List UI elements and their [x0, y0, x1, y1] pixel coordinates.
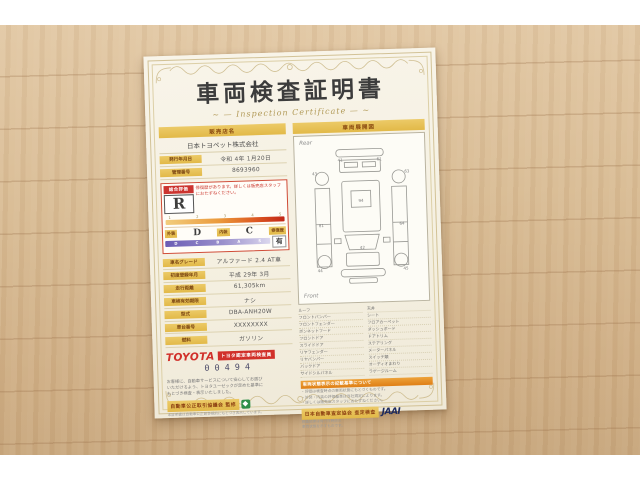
meta-value: 令和 4年 1月20日: [204, 152, 286, 164]
spec-label: 走行距離: [164, 284, 206, 293]
panel-number: 94: [358, 198, 363, 203]
overall-evaluation-box: 総合評価 R 修復歴があります。詳しくは販売店スタッフにおたずねください。 12…: [160, 179, 289, 255]
spec-value: DBA-ANH20W: [209, 308, 291, 317]
spec-label: 燃料: [165, 336, 207, 345]
spec-value: ナシ: [209, 294, 291, 306]
evaluation-note: 修復歴があります。詳しくは販売店スタッフにおたずねください。: [195, 182, 285, 213]
meta-row: 管理番号 8693960: [160, 163, 287, 179]
screenshot: 車両検査証明書 ~ — Inspection Certificate — ~ 販…: [0, 0, 640, 480]
panel-number: 81: [319, 223, 324, 228]
spec-value: 61,305km: [209, 282, 291, 291]
spec-label: 初度登録年月: [163, 271, 205, 280]
footer-description: お客様に、自動車サービスについて安心してお選びいただけるよう、トヨタユーゼックが…: [167, 375, 295, 398]
inspection-certificate: 車両検査証明書 ~ — Inspection Certificate — ~ 販…: [143, 48, 446, 419]
certified-inspector-badge: トヨタ認定車両検査員: [218, 350, 275, 361]
spec-value: XXXXXXXX: [210, 321, 292, 330]
spec-value: ガソリン: [210, 332, 292, 344]
panel-number: 42: [360, 245, 365, 250]
meta-value: 8693960: [205, 166, 287, 175]
grade-scale-letter: C: [195, 240, 198, 245]
panel-number: 45: [403, 265, 408, 270]
interior-label: 内装: [217, 228, 230, 236]
exterior-grade: D: [179, 228, 215, 239]
meta-label: 管理番号: [160, 168, 202, 177]
spec-label: 車検有効期限: [164, 297, 206, 306]
scale-tick: 1: [168, 215, 171, 220]
fair-trade-council-bar: 自動車公正取引協議会 監修: [167, 398, 239, 411]
toyota-logo: TOYOTA: [166, 350, 215, 364]
legend-item: サイドシルパネル: [300, 369, 364, 378]
wooden-table-photo: 車両検査証明書 ~ — Inspection Certificate — ~ 販…: [0, 25, 640, 455]
legend-right: 天井シートフロアカーペットダッシュボードドアトリムステアリングメーターパネルスイ…: [367, 304, 433, 376]
scale-tick: 3: [224, 213, 227, 218]
scale-tick: 2: [196, 214, 199, 219]
spec-rows: 車名グレード アルファード 2.4 AT車 初度登録年月 平成 29年 3月: [163, 252, 293, 347]
grade-scale-letter: A: [237, 239, 240, 244]
legend-left: ルーフフロントバンパーフロントフェンダーボンネットフードフロントドアスライドドア…: [298, 306, 364, 378]
meta-rows: 発行年月日 令和 4年 1月20日 管理番号 8693960: [159, 150, 287, 180]
interior-grade: C: [231, 226, 267, 237]
panel-number: 41: [338, 157, 343, 162]
certificate-content: 車両検査証明書 ~ — Inspection Certificate — ~ 販…: [157, 62, 433, 405]
grade-scale-letter: D: [174, 241, 177, 246]
certificate-title: 車両検査証明書: [157, 68, 424, 110]
panel-number: 61: [377, 156, 382, 161]
spec-label: 車名グレード: [163, 258, 205, 267]
scale-tick: 4: [251, 212, 254, 217]
fair-trade-council-logo-icon: [241, 399, 250, 408]
spec-label: 車台番号: [165, 323, 207, 332]
spec-label: 型式: [164, 310, 206, 319]
right-column: 車両展開図 Rear Front: [293, 119, 435, 430]
panel-number: 64: [399, 220, 404, 225]
legend-item: ラゲージルーム: [369, 367, 433, 376]
spec-value: アルファード 2.4 AT車: [208, 254, 290, 266]
spec-value: 平成 29年 3月: [208, 268, 290, 280]
grade-scale-letter: S: [258, 238, 261, 243]
panel-number: 63: [404, 168, 409, 173]
left-column: 販売店名 日本トヨペット株式会社 発行年月日 令和 4年 1月20日: [159, 123, 296, 434]
spec-row: 燃料 ガソリン: [165, 330, 292, 347]
jaai-logo: JAAI: [382, 406, 401, 417]
repair-history-label: 修復歴: [269, 227, 286, 236]
panel-number: 44: [318, 268, 323, 273]
panel-number: 43: [312, 171, 317, 176]
grade-scale-letter: B: [216, 240, 219, 245]
scale-tick: 5: [279, 211, 282, 216]
evaluation-grade: R: [164, 194, 195, 214]
notice-lines: ・評価は検査時点の車両状態にもとづくものです。・外装・内装の評価基準は当社規定に…: [301, 385, 433, 406]
panel-numbers: 43416163948164444245: [294, 133, 429, 304]
evaluation-label: 総合評価: [163, 185, 193, 194]
exterior-label: 外装: [165, 230, 178, 238]
meta-label: 発行年月日: [160, 155, 202, 164]
vehicle-diagram: Rear Front: [293, 132, 430, 305]
grade-scale-bar: DCBAS: [165, 238, 270, 247]
repair-history-value: 有: [272, 236, 286, 248]
